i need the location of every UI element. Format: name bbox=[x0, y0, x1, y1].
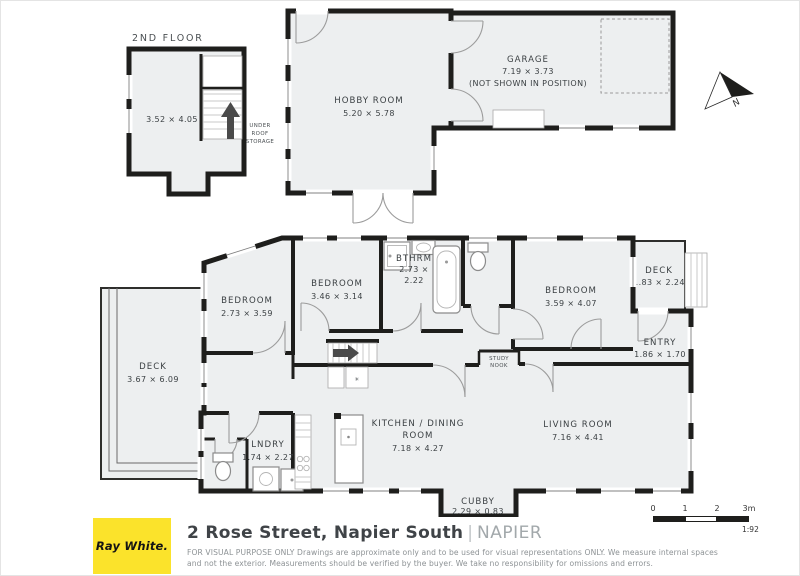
scale-tick-0: 0 bbox=[650, 504, 655, 513]
kitchen-dim: 7.18 × 4.27 bbox=[392, 444, 444, 453]
deck-right-name: DECK bbox=[645, 266, 673, 276]
toilet-wc bbox=[468, 243, 488, 252]
hobby-room-dim: 5.20 × 5.78 bbox=[343, 109, 395, 118]
garage-note: (NOT SHOWN IN POSITION) bbox=[469, 79, 587, 88]
kitchen-name1: KITCHEN / DINING bbox=[372, 419, 465, 429]
laundry-dim: 1.74 × 2.27 bbox=[242, 453, 294, 462]
toilet-laundry bbox=[213, 453, 233, 462]
svg-text:ROOF: ROOF bbox=[252, 131, 269, 137]
second-floor-stairs bbox=[201, 54, 244, 141]
scale-tick-1: 1 bbox=[682, 504, 687, 513]
deck-left-name: DECK bbox=[139, 362, 167, 372]
second-floor-unit: 2ND FLOOR 3.52 × 4.05 UNDER ROOF STORAGE bbox=[126, 33, 275, 194]
garage-dim: 7.19 × 3.73 bbox=[502, 67, 554, 76]
kitchen-island bbox=[335, 415, 363, 483]
bathroom-dim2: 2.22 bbox=[404, 276, 423, 285]
ray-white-logo: Ray White. bbox=[93, 518, 171, 574]
north-arrow-icon: N bbox=[705, 72, 754, 109]
scale-tick-3: 3m bbox=[743, 504, 756, 513]
bedroom-mid-name: BEDROOM bbox=[311, 279, 363, 289]
study-nook-l2: NOOK bbox=[490, 363, 508, 369]
living-dim: 7.16 × 4.41 bbox=[552, 433, 604, 442]
floorplan-drawing: 2ND FLOOR 3.52 × 4.05 UNDER ROOF STORAGE bbox=[1, 1, 800, 517]
bathroom-dim1: 2.73 × bbox=[399, 265, 428, 274]
svg-text:STORAGE: STORAGE bbox=[246, 139, 275, 145]
hall-cupboards: ✳ bbox=[328, 367, 368, 388]
living-name: LIVING ROOM bbox=[543, 420, 612, 430]
bedroom-left-name: BEDROOM bbox=[221, 296, 273, 306]
garage-room bbox=[451, 13, 673, 128]
scale-bar-segments bbox=[653, 516, 749, 522]
property-address: 2 Rose Street, Napier South|NAPIER bbox=[187, 523, 542, 543]
scale-tick-2: 2 bbox=[714, 504, 719, 513]
hobby-garage-unit: HOBBY ROOM 5.20 × 5.78 GARAGE 7.19 × 3.7… bbox=[285, 8, 674, 224]
bedroom-right-name: BEDROOM bbox=[545, 286, 597, 296]
entry-dim: 1.86 × 1.70 bbox=[634, 350, 686, 359]
kitchen-name2: ROOM bbox=[403, 431, 434, 441]
cubby-dim: 2.29 × 0.83 bbox=[452, 507, 504, 516]
main-stairs bbox=[328, 343, 377, 363]
disclaimer-text: FOR VISUAL PURPOSE ONLY Drawings are app… bbox=[187, 547, 718, 569]
hobby-room-name: HOBBY ROOM bbox=[334, 96, 403, 106]
disclaimer-line1: FOR VISUAL PURPOSE ONLY Drawings are app… bbox=[187, 547, 718, 558]
brand-name: Ray White. bbox=[96, 539, 168, 553]
address-suburb: NAPIER bbox=[477, 523, 542, 543]
bedroom-right-dim: 3.59 × 4.07 bbox=[545, 299, 597, 308]
deck-left-dim: 3.67 × 6.09 bbox=[127, 375, 179, 384]
heater-icon: ✳ bbox=[355, 377, 360, 383]
deck-right-dim: 1.83 × 2.24 bbox=[633, 278, 685, 287]
cubby-name: CUBBY bbox=[461, 497, 495, 507]
deck-left: DECK 3.67 × 6.09 bbox=[101, 288, 204, 479]
bedroom-left-dim: 2.73 × 3.59 bbox=[221, 309, 273, 318]
floorplan-page: 2ND FLOOR 3.52 × 4.05 UNDER ROOF STORAGE bbox=[0, 0, 800, 576]
garage-name: GARAGE bbox=[507, 55, 549, 65]
study-nook-l1: STUDY bbox=[489, 356, 509, 362]
second-floor-dim: 3.52 × 4.05 bbox=[146, 115, 198, 124]
disclaimer-line2: and not the exterior. Measurements shoul… bbox=[187, 558, 718, 569]
entry-name: ENTRY bbox=[644, 338, 677, 348]
svg-text:UNDER: UNDER bbox=[249, 123, 270, 129]
scale-ratio: 1:92 bbox=[742, 525, 759, 534]
washing-machine bbox=[253, 467, 279, 491]
bathroom-name: BTHRM bbox=[396, 254, 432, 264]
address-street: 2 Rose Street, Napier South bbox=[187, 523, 463, 543]
second-floor-label: 2ND FLOOR bbox=[132, 33, 204, 44]
deck-right: DECK 1.83 × 2.24 bbox=[633, 241, 707, 311]
under-roof-storage-label: UNDER ROOF STORAGE bbox=[246, 123, 275, 145]
laundry-name: LNDRY bbox=[251, 440, 285, 450]
kitchen-counter bbox=[295, 415, 311, 489]
address-separator: | bbox=[467, 523, 473, 543]
bedroom-mid-dim: 3.46 × 3.14 bbox=[311, 292, 363, 301]
svg-text:N: N bbox=[731, 97, 743, 109]
